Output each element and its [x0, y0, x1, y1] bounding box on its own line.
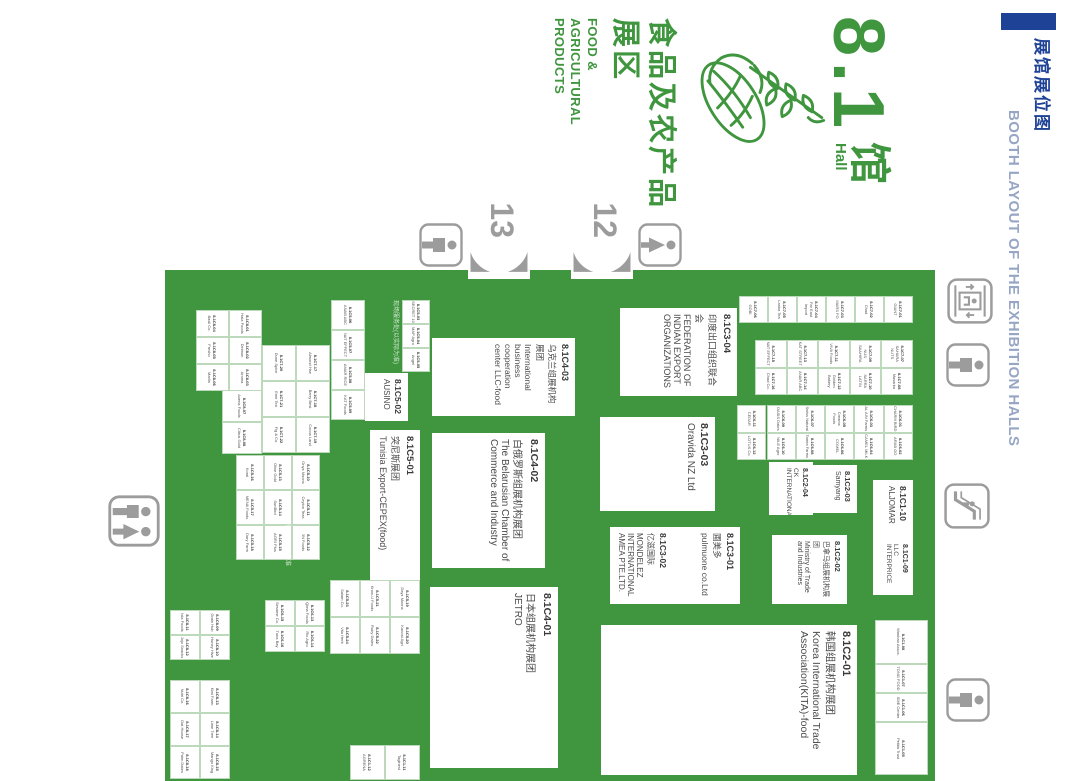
booth-8.1C5-13: 8.1C5-13Olive Gold [264, 455, 292, 490]
booth-8.1C5-07: 8.1C5-07NAT EFFECT [331, 330, 365, 360]
booth-code: 8.1C5-12 [306, 534, 311, 550]
booth-name: ANAB ABC [343, 305, 348, 325]
booth-code: 8.1C5-08 [348, 367, 353, 383]
booth-name-cn: 突尼斯展团 [389, 436, 402, 574]
booth-code: 8.1C1-11 [403, 754, 408, 770]
booth-code: 8.1C4-01 [541, 593, 553, 762]
booth-code: 8.1C8-11 [185, 614, 190, 630]
zone-name-en: FOOD & AGRICULTURAL PRODUCTS [550, 18, 600, 125]
booth-8.1C6-15: 8.1C6-15Sesame Co. [265, 600, 295, 626]
booth-8.1C7-04: 8.1C7-04Far East Import [797, 296, 826, 323]
booth-name: ANAR ABC [798, 371, 803, 391]
booth-8.1C5-04: 8.1C5-04MAP Agro [402, 324, 430, 348]
booth-code: 8.1C3-04 [721, 314, 732, 390]
booth-code: 8.1C6-03 [869, 411, 874, 427]
booth-8.1C7-22: 8.1C7-22Fig & Co. [262, 417, 296, 453]
booth-8.1C6-10: 8.1C6-10NILE Agro [767, 433, 796, 461]
booth-name: TONG FOOD [897, 666, 902, 690]
booth-8.1C6-08: 8.1C6-08Tamra Farms [796, 433, 825, 461]
booth-name: NAT EFFECT [343, 333, 348, 357]
booth-code: 8.1C7-13 [803, 346, 808, 362]
booth-code: 8.1C7-12 [837, 373, 842, 389]
booth-name: ARAB GO [893, 437, 898, 455]
booth-code: 8.1C5-21 [375, 590, 380, 606]
booth-name: Nutri Co. [180, 689, 185, 705]
booth-8.1C8-08: 8.1C8-08Citrus Gold [222, 422, 262, 454]
booth-name: Dary Farm [245, 533, 250, 552]
booth-code: 8.1C4-02 [528, 439, 540, 562]
booth-name: GOBI [749, 304, 754, 314]
booth-code: 8.1C6-08 [810, 438, 815, 454]
booth-name: AL AIN Farms [864, 406, 869, 431]
booth-name: Taginest [398, 755, 403, 770]
booth-name-en: The Belarusian Chamber of Commerce and I… [488, 439, 510, 562]
booth-name-en: Tunisia Export-CEPEX(food) [378, 436, 388, 574]
booth-8.1C7-20: 8.1C7-20Dune Spice [262, 345, 296, 381]
booth-code: 8.1C6-04 [869, 438, 874, 454]
booth-code: 8.1C7-20 [279, 355, 284, 371]
booth-name: Berry Best [308, 390, 313, 409]
booth-code: 8.1C7-21 [279, 391, 284, 407]
booth-8.1C8-09: 8.1C8-09Grain Hub [200, 610, 230, 635]
booth-8.1C8-12: 8.1C8-12Jojo Snacks [170, 635, 200, 660]
booth-name-en: Korea International Trade Association(KI… [798, 631, 822, 769]
booth-8.1C5-03: 8.1C5-03SECRET 10 [402, 300, 430, 324]
booth-name-en: FEDERATION OF INDIAN EXPORT ORGANIZATION… [662, 314, 692, 390]
booth-code: 8.1C8-09 [215, 614, 220, 630]
booth-code: 8.1C5-16 [250, 464, 255, 480]
booth-code: 8.1C5-11 [306, 499, 311, 515]
corn-wheat-icon [687, 25, 835, 160]
booth-name: Petitia Trust [897, 738, 902, 759]
booth-name: Rio Agro [305, 631, 310, 646]
booth-8.1C2-04: 8.1C2-04CK INTERNATIONAL [769, 462, 813, 515]
booth-layout-sheet: 展馆展位图 BOOTH LAYOUT OF THE EXHIBITION HAL… [0, 0, 1080, 781]
booth-code: 8.1C5-07 [348, 337, 353, 353]
restroom-double-icon [108, 495, 160, 547]
booth-code: 8.1C1-08 [902, 634, 907, 650]
booth-8.1C8-11: 8.1C8-11Isla Foods [170, 610, 200, 635]
booth-name: SARRA LATIN [858, 369, 868, 395]
booth-code: 8.1C8-18 [185, 754, 190, 770]
booth-code: 8.1C5-02 [393, 379, 403, 415]
booth-name: Citrus Gold [237, 428, 242, 448]
booth-8.1C5-09: 8.1C5-09KAT Foods [331, 390, 365, 420]
booth-8.1C5-12: 8.1C5-123N Foods [292, 525, 320, 560]
booth-name: NILE Agro [776, 437, 781, 455]
booth-name: Kiwi Farm [210, 688, 215, 706]
booth-name: SECRET 10 [411, 301, 416, 323]
booth-code: 8.1C7-18 [313, 391, 318, 407]
booth-8.1C1-12: 8.1C1-12AGRENA [350, 745, 385, 780]
booth-name: Mango King [210, 752, 215, 773]
booth-code: 8.1C5-17 [250, 499, 255, 515]
booth-code: 8.1C1-09 [901, 544, 908, 589]
rotated-page: 展馆展位图 BOOTH LAYOUT OF THE EXHIBITION HAL… [0, 0, 1080, 781]
booth-code: 8.1C5-24 [345, 627, 350, 643]
booth-code: 8.1C5-13 [278, 464, 283, 480]
booth-code: 8.1C7-11 [834, 346, 839, 362]
booth-code: 8.1C8-02 [246, 342, 251, 358]
zone-name-cn-line1: 食品及农产品 [643, 18, 678, 210]
booth-name: Onyx Moons [301, 461, 306, 483]
page-title-en: BOOTH LAYOUT OF THE EXHIBITION HALLS [1005, 110, 1022, 446]
booth-name: KAT STREET [798, 342, 803, 366]
booth-name: Krow-U Foods [370, 586, 375, 612]
restroom-male-icon [946, 678, 990, 722]
booth-code: 8.1C7-10 [868, 373, 873, 389]
booth-name: Vita Herb [340, 627, 345, 644]
booth-name: NAT EFFECT [766, 342, 771, 366]
booth-name-cn: 巴拿马组展机构展团 [811, 541, 831, 598]
booth-name-cn: 印度出口组织联合会 [693, 314, 719, 390]
booth-name: VIVA Foods [829, 343, 834, 364]
booth-8.1C7-13: 8.1C7-13KAT STREET [787, 340, 819, 368]
booth-code: 8.1C7-19 [313, 427, 318, 443]
booth-8.1C7-12: 8.1C7-12Golden Bakery [819, 368, 851, 396]
booth-8.1C8-18: 8.1C8-18Palm Dates [170, 746, 200, 779]
booth-code: 8.1C6-10 [781, 438, 786, 454]
booth-name: CHARM BIRD [893, 406, 898, 431]
booth-name: SME Center [897, 697, 902, 719]
booth-code: 8.1C2-02 [833, 541, 842, 598]
page-title-cn: 展馆展位图 [1031, 38, 1056, 133]
booth-code: 8.1C1-07 [902, 670, 907, 686]
booth-code: 8.1C6-05 [842, 411, 847, 427]
booth-code: 8.1C5-01 [404, 436, 415, 574]
booth-8.1C3-04: 8.1C3-04印度出口组织联合会FEDERATION OF INDIAN EX… [620, 308, 737, 396]
booth-name: Fresho [208, 344, 213, 356]
booth-code: 8.1C5-22 [375, 627, 380, 643]
booth-code: 8.1C2-01 [840, 631, 852, 769]
booth-name: Honey Hive [210, 637, 215, 658]
booth-name-en: International business cooperation cente… [493, 344, 533, 410]
booth-code: 8.1C5-10 [306, 464, 311, 480]
booth-code: 8.1C8-05 [213, 342, 218, 358]
booth-8.1C7-10: 8.1C7-10SARRA LATIN [850, 368, 882, 396]
booth-8.1C8-13: 8.1C8-13Kiwi Farm [200, 680, 230, 713]
booth-name: Almond Hse [308, 352, 313, 374]
booth-8.1C5-22: 8.1C5-22Ruby Dates [360, 617, 390, 654]
booth-code: 8.1C8-10 [215, 639, 220, 655]
booth-8.1C8-10: 8.1C8-10Honey Hive [200, 635, 230, 660]
booth-8.1C8-15: 8.1C8-15Mango King [200, 746, 230, 779]
booth-8.1C7-03: 8.1C7-03MARS FO [826, 296, 855, 323]
booth-name: Palm Dates [180, 752, 185, 773]
booth-name-cn: 韩国组展机构展团 [823, 631, 838, 769]
booth-name: Salam Co. [340, 589, 345, 608]
booth-code: 8.1C6-13 [310, 605, 315, 621]
booth-8.1C6-05: 8.1C6-05Creams Foods [825, 405, 854, 433]
booth-name: Isla Foods [180, 613, 185, 631]
booth-name-cn: 白俄罗斯组展机构展团 [511, 439, 526, 562]
booth-8.1C7-01: 8.1C7-01GIANT [884, 296, 913, 323]
booth-name: Cocoa Land [308, 424, 313, 446]
booth-name: Lime Tree [210, 721, 215, 739]
booth-code: 8.1C7-22 [279, 427, 284, 443]
booth-code: 8.1C8-08 [242, 430, 247, 446]
booth-name: Jojo Snacks [180, 637, 185, 659]
booth-name: Tuna Bay [275, 631, 280, 648]
booth-8.1C8-03: 8.1C8-03Aroma [229, 364, 262, 391]
booth-code: 8.1C5-09 [348, 397, 353, 413]
booth-code: 8.1C5-06 [348, 307, 353, 323]
booth-8.1C8-01: 8.1C8-01Hala Foods [229, 310, 262, 337]
booth-code: 8.1C8-06 [213, 369, 218, 385]
booth-name: COMEL [835, 439, 840, 453]
booth-code: 8.1C7-06 [754, 301, 759, 317]
booth-name: Basil Co. [208, 315, 213, 331]
booth-name: Avena Foods [237, 394, 242, 418]
booth-code: 8.1C8-12 [185, 639, 190, 655]
booth-name: Emir Tea [274, 391, 279, 407]
booth-code: 8.1C2-04 [801, 468, 808, 509]
booth-code: 8.1C6-15 [280, 605, 285, 621]
booth-name: Lanka Tea [778, 300, 783, 318]
booth-code: 8.1C8-13 [215, 688, 220, 704]
booth-name: OASIS Dates [776, 407, 781, 431]
booth-8.1C5-19: 8.1C5-19Dayz Moons [390, 580, 420, 617]
booth-name: Sesame Co. [275, 602, 280, 624]
booth-code: 8.1C7-05 [783, 301, 788, 317]
booth-name-cn: 亿滋国际 [645, 533, 656, 598]
booth-name-en: Ministry of Trade and Industries [796, 541, 810, 598]
booth-8.1C5-24: 8.1C5-24Vita Herb [330, 617, 360, 654]
booth-name: MAP Agro [411, 327, 416, 345]
booth-8.1C5-18: 8.1C5-18Dary Farm [236, 525, 264, 560]
booth-8.1C3-03: 8.1C3-03Oravida NZ Ltd [600, 417, 715, 511]
booth-code: 8.1C1-05 [902, 740, 907, 756]
booth-8.1C7-19: 8.1C7-19Cocoa Land [296, 417, 330, 453]
booth-code: 8.1C5-04 [416, 328, 421, 344]
floor-note-1: 现场服务处(以实际为准) [390, 300, 398, 370]
booth-code: 8.1C1-10 [898, 486, 908, 532]
booth-name: Creams Foods [832, 406, 842, 432]
booth-name: KAT Foods [343, 395, 348, 415]
booth-name: Tamra Farms [805, 434, 810, 458]
booth-8.1C8-14: 8.1C8-14Lime Tree [200, 713, 230, 746]
booth-name-en: AUSINO [382, 379, 391, 415]
booth-name-en: MONDELEZ INTERNATIONAL AMEA PTE.LTD. [617, 533, 644, 598]
booth-code: 8.1C8-03 [246, 369, 251, 385]
booth-code: 8.1C6-07 [810, 411, 815, 427]
booth-name: Olive Gold [273, 463, 278, 482]
booth-code: 8.1C6-12 [752, 438, 757, 454]
booth-name: Aroma [241, 372, 246, 384]
booth-code: 8.1C7-15 [771, 346, 776, 362]
booth-name-en: CK INTERNATIONAL [785, 468, 799, 509]
booth-code: 8.1C5-19 [405, 590, 410, 606]
booth-8.1C3-02: 8.1C3-02亿滋国际MONDELEZ INTERNATIONAL AMEA … [610, 527, 673, 604]
booth-8.1C5-11: 8.1C5-11Ceylon Teas [292, 490, 320, 525]
booth-code: 8.1C6-09 [781, 411, 786, 427]
booth-name: Delmon [241, 344, 246, 358]
booth-name: AMAR RICE [343, 364, 348, 386]
booth-code: 8.1C7-14 [803, 373, 808, 389]
restroom-female-icon [638, 223, 682, 267]
booth-code: 8.1C2-03 [843, 471, 852, 507]
booth-8.1C6-03: 8.1C6-03AL AIN Farms [854, 405, 883, 433]
booth-name: Far East Import [804, 297, 814, 322]
gate-door-icon [571, 240, 633, 274]
booth-name: Fig & Co. [274, 427, 279, 444]
booth-8.1C6-09: 8.1C6-09OASIS Dates [767, 405, 796, 433]
booth-8.1C6-11: 8.1C6-11CEDAR [737, 405, 766, 433]
booth-code: 8.1C5-03 [416, 304, 421, 320]
booth-name: Wanbao Assoc. [897, 628, 902, 656]
booth-name: GIANT [894, 303, 899, 315]
elevator-icon [947, 278, 993, 324]
booth-8.1C6-04: 8.1C6-04CAMEL MILK [854, 433, 883, 461]
restroom-male-icon [419, 223, 463, 267]
booth-name: SAHARA NUTS [890, 341, 900, 367]
booth-code: 8.1C7-01 [899, 301, 904, 317]
booth-name: Chad [865, 305, 870, 315]
booth-name: Hala Foods [241, 313, 246, 333]
restroom-male-icon [946, 343, 990, 387]
booth-8.1C8-16: 8.1C8-16Nutri Co. [170, 680, 200, 713]
booth-name: Masarka [892, 374, 897, 389]
booth-name: MARS FO [836, 300, 841, 318]
booth-name: Qima Foods [305, 602, 310, 624]
booth-code: 8.1C7-08 [897, 373, 902, 389]
booth-code: 8.1C5-18 [250, 534, 255, 550]
booth-8.1C7-15: 8.1C7-15NAT EFFECT [756, 340, 788, 368]
booth-8.1C8-04: 8.1C8-04Basil Co. [196, 310, 229, 337]
booth-8.1C2-01: 8.1C2-01韩国组展机构展团Korea International Trad… [601, 625, 857, 775]
booth-8.1C7-21: 8.1C7-21Emir Tea [262, 381, 296, 417]
booth-8.1C1-07: 8.1C1-07TONG FOOD [875, 664, 928, 693]
booth-8.1C5-16: 8.1C5-16Koral [236, 455, 264, 490]
zone-en-line3: PRODUCTS [550, 18, 567, 125]
booth-code: 8.1C7-07 [900, 346, 905, 362]
booth-8.1C2-03: 8.1C2-03Samyang [813, 465, 857, 513]
booth-8.1C5-05: 8.1C5-05Angel [402, 348, 430, 372]
booth-code: 8.1C1-12 [368, 754, 373, 770]
booth-8.1C5-06: 8.1C5-06ANAB ABC [331, 300, 365, 330]
booth-code: 8.1C6-02 [898, 438, 903, 454]
booth-name: Grain Hub [210, 613, 215, 631]
booth-8.1C6-06: 8.1C6-06COMEL [825, 433, 854, 461]
booth-8.1C5-20: 8.1C5-20Kanost Agri [390, 617, 420, 654]
booth-name: NUS SAAHIRA [858, 341, 868, 367]
booth-code: 8.1C5-23 [345, 590, 350, 606]
booth-8.1C5-01: 8.1C5-01突尼斯展团Tunisia Export-CEPEX(food) [370, 430, 420, 580]
booth-8.1C7-11: 8.1C7-11VIVA Foods [819, 340, 851, 368]
booth-name: AGRENA [363, 754, 368, 771]
booth-name-cn: 乌克兰组展机构展团 [534, 344, 558, 410]
booth-code: 8.1C5-05 [416, 352, 421, 368]
booth-name: 3N Foods [301, 534, 306, 551]
booth-8.1C7-14: 8.1C7-14ANAR ABC [787, 368, 819, 396]
booth-name-en: pulmuone co.Ltd [700, 533, 710, 598]
booth-code: 8.1C8-17 [185, 721, 190, 737]
booth-code: 8.1C7-02 [870, 301, 875, 317]
booth-8.1C7-16: 8.1C7-16Chad Co. [756, 368, 788, 396]
booth-name: Chad Co. [766, 373, 771, 390]
booth-name-en: Oravida NZ Ltd [685, 423, 696, 505]
booth-8.1C5-10: 8.1C5-10Onyx Moons [292, 455, 320, 490]
booth-code: 8.1C7-04 [814, 301, 819, 317]
booth-8.1C1-06: 8.1C1-06SME Center [875, 693, 928, 722]
booth-name: CAMEL MILK [864, 434, 869, 458]
booth-8.1C6-13: 8.1C6-13Qima Foods [295, 600, 325, 626]
gate-door-icon [468, 240, 530, 274]
booth-8.1C4-01: 8.1C4-01日本组展机构展团JETRO [430, 587, 558, 768]
booth-8.1C8-17: 8.1C8-17Oat House [170, 713, 200, 746]
booth-name-en: LLC INTERPRICE [885, 544, 899, 589]
zone-en-line1: FOOD & [583, 18, 600, 125]
zone-name-cn-line2: 展区 [607, 18, 642, 82]
booth-name: Ruby Dates [370, 625, 375, 646]
booth-code: 8.1C1-06 [902, 699, 907, 715]
hall-suffix-cn: 馆 [848, 142, 890, 184]
booth-name-cn: 圃美多 [711, 533, 723, 598]
booth-8.1C5-21: 8.1C5-21Krow-U Foods [360, 580, 390, 617]
booth-code: 8.1C7-16 [771, 373, 776, 389]
booth-name: CEDAR [747, 412, 752, 426]
escalator-icon [944, 483, 990, 529]
booth-8.1C2-02: 8.1C2-02巴拿马组展机构展团Ministry of Trade and I… [772, 535, 847, 604]
booth-8.1C7-05: 8.1C7-05Lanka Tea [768, 296, 797, 323]
booth-8.1C7-17: 8.1C7-17Almond Hse [296, 345, 330, 381]
booth-8.1C6-02: 8.1C6-02ARAB GO [884, 433, 913, 461]
booth-8.1C7-06: 8.1C7-06GOBI [739, 296, 768, 323]
booth-8.1C6-12: 8.1C6-12LOTUS Co. [737, 433, 766, 461]
booth-8.1C7-02: 8.1C7-02Chad [855, 296, 884, 323]
gate-number-13: 13 [483, 196, 520, 238]
zone-en-line2: AGRICULTURAL [567, 18, 584, 125]
booth-code: 8.1C4-03 [560, 344, 570, 410]
booth-code: 8.1C3-02 [658, 533, 668, 598]
booth-name-en: Samyang [834, 471, 841, 507]
booth-8.1C1-09: 8.1C1-09LLC INTERPRICE [873, 538, 913, 595]
booth-code: 8.1C8-14 [215, 721, 220, 737]
booth-name: Ceylon Teas [301, 497, 306, 519]
booth-8.1C6-14: 8.1C6-14Rio Agro [295, 626, 325, 652]
booth-name: Dune Spice [274, 353, 279, 374]
booth-8.1C8-06: 8.1C8-06Marlin [196, 364, 229, 391]
booth-8.1C6-01: 8.1C6-01CHARM BIRD [884, 405, 913, 433]
booth-name-cn: 日本组展机构展团 [524, 593, 539, 762]
booth-name-en: ALJOMAR [887, 486, 896, 532]
booth-name: Marlin [208, 372, 213, 383]
booth-8.1C1-11: 8.1C1-11Taginest [385, 745, 420, 780]
booth-8.1C7-09: 8.1C7-09NUS SAAHIRA [850, 340, 882, 368]
booth-name: Oat House [180, 720, 185, 739]
booth-8.1C5-02: 8.1C5-02AUSINO [365, 373, 408, 421]
booth-name: LOTUS Co. [747, 436, 752, 457]
booth-code: 8.1C6-06 [840, 438, 845, 454]
booth-name: Swiss Natural [805, 407, 810, 431]
booth-name: Golden Bakery [827, 369, 837, 395]
booth-8.1C8-05: 8.1C8-05Fresho [196, 337, 229, 364]
booth-8.1C3-01: 8.1C3-01圃美多pulmuone co.Ltd [673, 527, 740, 604]
booth-code: 8.1C6-11 [752, 411, 757, 427]
booth-8.1C1-05: 8.1C1-05Petitia Trust [875, 722, 928, 775]
booth-8.1C1-08: 8.1C1-08Wanbao Assoc. [875, 620, 928, 664]
booth-code: 8.1C8-16 [185, 688, 190, 704]
booth-code: 8.1C6-14 [310, 631, 315, 647]
title-accent-bar [1001, 13, 1056, 30]
booth-8.1C6-07: 8.1C6-07Swiss Natural [796, 405, 825, 433]
booth-name-en: JETRO [512, 593, 523, 762]
booth-code: 8.1C8-07 [242, 398, 247, 414]
booth-name: SunBird [273, 500, 278, 514]
floor-note-2: 具体展位信息以现场为准 [282, 500, 290, 572]
booth-8.1C8-02: 8.1C8-02Delmon [229, 337, 262, 364]
booth-8.1C7-18: 8.1C7-18Berry Best [296, 381, 330, 417]
